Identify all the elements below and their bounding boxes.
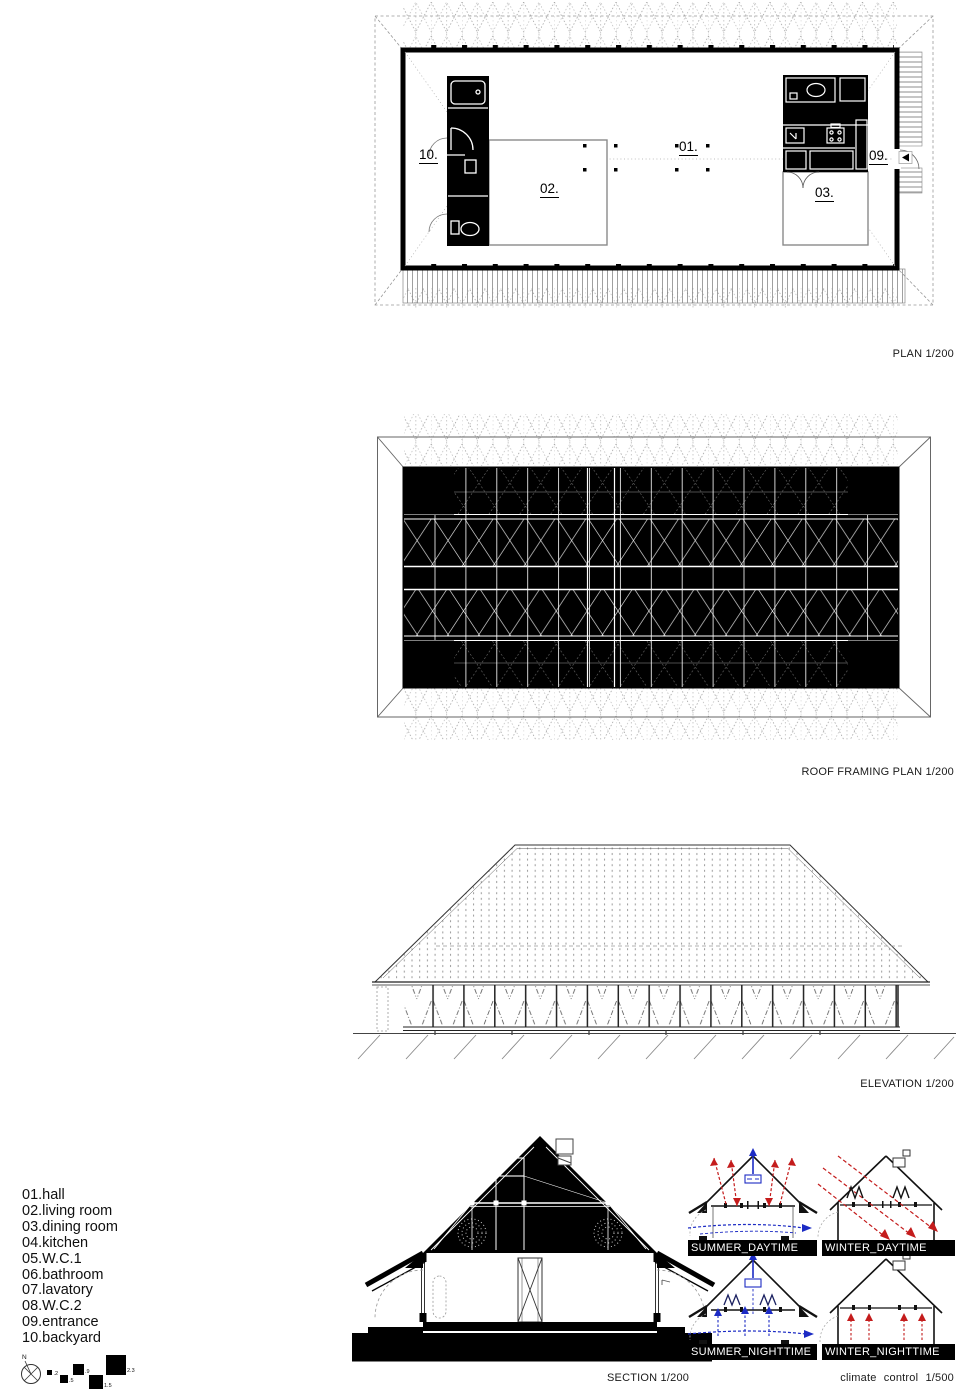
legend-item: 09.entrance xyxy=(22,1315,118,1331)
climate-label-summer-daytime: SUMMER_DAYTIME xyxy=(688,1240,817,1256)
room-label-02: 02. xyxy=(540,182,559,198)
svg-text:.5: .5 xyxy=(69,1378,74,1384)
columns xyxy=(405,985,899,1027)
downpipe xyxy=(377,987,388,1031)
climate-summer-daytime xyxy=(688,1148,817,1240)
entrance-door xyxy=(892,149,919,169)
chimney-icon xyxy=(893,1150,910,1167)
legend-item: 04.kitchen xyxy=(22,1236,118,1252)
elevation-title: ELEVATION 1/200 xyxy=(860,1078,954,1090)
deck xyxy=(403,269,905,303)
right-core-kitchen xyxy=(783,75,868,188)
legend-item: 08.W.C.2 xyxy=(22,1299,118,1315)
svg-text:1.5: 1.5 xyxy=(104,1383,112,1389)
entrance-stairs xyxy=(897,52,922,193)
legend-item: 02.living room xyxy=(22,1204,118,1220)
drawing-sheet: 10. 02. 01. 03. 09. PLAN 1/200 xyxy=(0,0,960,1391)
wall-columns-bottom xyxy=(406,264,894,270)
room-legend: 01.hall 02.living room 03.dining room 04… xyxy=(22,1188,118,1347)
roof-framing-drawing xyxy=(0,400,960,750)
truss-band-top xyxy=(404,414,898,466)
climate-title: climate control 1/500 xyxy=(840,1372,954,1384)
svg-text:.9: .9 xyxy=(85,1369,90,1375)
climate-label-summer-nighttime: SUMMER_NIGHTTIME xyxy=(688,1344,817,1360)
svg-text:.2: .2 xyxy=(54,1371,59,1377)
dining-room xyxy=(783,172,868,245)
legend-item: 10.backyard xyxy=(22,1331,118,1347)
legend-item: 05.W.C.1 xyxy=(22,1252,118,1268)
section-title: SECTION 1/200 xyxy=(607,1372,689,1384)
climate-label-winter-nighttime: WINTER_NIGHTTIME xyxy=(822,1344,955,1360)
graphic-scale-bar: .2 .5 .9 1.5 2.3 xyxy=(47,1355,135,1389)
room-label-03: 03. xyxy=(815,186,834,202)
truss-band-bottom xyxy=(404,688,898,740)
climate-winter-nighttime xyxy=(820,1253,942,1344)
legend-item: 03.dining room xyxy=(22,1220,118,1236)
room-label-10: 10. xyxy=(419,148,438,164)
climate-winter-daytime xyxy=(818,1150,942,1240)
svg-text:2.3: 2.3 xyxy=(127,1368,135,1374)
thermal-mass-icons xyxy=(847,1187,909,1198)
wall-columns-top xyxy=(406,45,894,51)
legend-item: 06.bathroom xyxy=(22,1268,118,1284)
elevation-drawing xyxy=(0,830,960,1075)
truss-band-top xyxy=(403,2,897,49)
fan-icon xyxy=(745,1279,761,1287)
ground-hatch xyxy=(358,1035,954,1059)
room-label-09: 09. xyxy=(869,149,888,165)
legend-item: 01.hall xyxy=(22,1188,118,1204)
climate-summer-nighttime xyxy=(688,1252,817,1344)
compass-icon: N xyxy=(22,1354,41,1384)
legend-item: 07.lavatory xyxy=(22,1283,118,1299)
compass-and-scale: N .2 .5 .9 1.5 2.3 xyxy=(16,1350,136,1390)
hip-roof xyxy=(375,845,928,982)
roof-framing-title: ROOF FRAMING PLAN 1/200 xyxy=(801,766,954,778)
thermal-mass-icons xyxy=(724,1295,776,1305)
climate-label-winter-daytime: WINTER_DAYTIME xyxy=(822,1240,955,1256)
north-label: N xyxy=(22,1354,27,1361)
room-label-01: 01. xyxy=(679,140,698,156)
plan-title: PLAN 1/200 xyxy=(893,348,954,360)
